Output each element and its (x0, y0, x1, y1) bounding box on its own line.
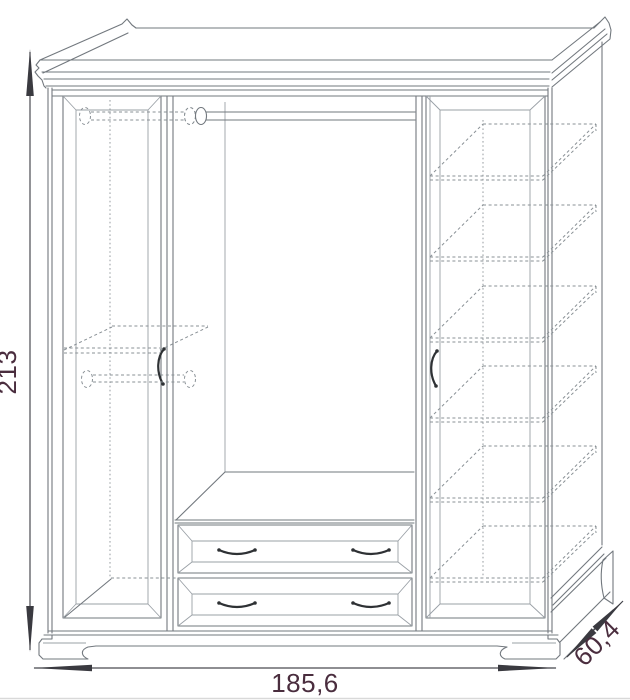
shelf-6 (430, 526, 596, 582)
drawer-2-handle-right (353, 603, 389, 607)
drawer-2-bevel (178, 578, 412, 626)
left-door-bevel (63, 96, 161, 618)
middle-hanging-rod (206, 112, 415, 120)
handle-end (217, 548, 221, 552)
depth-value: 60,4 (567, 613, 625, 671)
drawer-2-handle-left (219, 603, 255, 607)
left-top-hanging-rod (91, 112, 184, 120)
height-dimension: 213 (0, 49, 34, 652)
left-door (63, 96, 166, 618)
handle-end (387, 601, 391, 605)
right-foot (497, 635, 560, 659)
cornice-left-cap (35, 60, 46, 88)
handle-end (253, 548, 257, 552)
drawer-1-bevel (178, 525, 412, 573)
depth-dimension: 60,4 (566, 601, 626, 672)
handle-end (351, 548, 355, 552)
handle-end (434, 384, 438, 388)
handle-end (387, 548, 391, 552)
handle-end (217, 601, 221, 605)
shelf-3 (430, 286, 596, 342)
shelf-2 (430, 205, 596, 261)
right-side-front-edge (548, 88, 552, 633)
right-door-edges (426, 96, 545, 618)
rod-end-cap (82, 371, 93, 388)
left-door-edges (63, 96, 161, 618)
feet (39, 547, 613, 659)
bottom-rail (44, 631, 558, 635)
divider-right (416, 96, 422, 631)
side-plinth-molding (551, 547, 606, 612)
middle-floor-perspective (176, 472, 414, 520)
shelf-1 (430, 124, 596, 180)
arrow-left-icon (33, 665, 92, 671)
left-foot (39, 635, 96, 659)
rod-end-cap (185, 371, 196, 388)
rear-foot (601, 551, 613, 604)
rod-end (196, 108, 207, 125)
divider-left (167, 96, 173, 631)
arrow-up-icon (26, 49, 34, 96)
middle-floor-front-edge (175, 520, 414, 523)
drawer-1-handle-right (353, 550, 389, 554)
left-floor-diagonal (65, 579, 111, 617)
width-value: 185,6 (271, 668, 339, 698)
shelf-4 (430, 366, 596, 422)
right-door (426, 96, 545, 618)
body-frame (44, 42, 602, 646)
wardrobe-schematic: 213 185,6 60,4 (0, 0, 630, 700)
right-door-handle (431, 351, 437, 386)
cornice (35, 17, 611, 88)
arrow-right-icon (498, 665, 557, 671)
right-compartment-shelves (430, 120, 596, 582)
left-shelf-hidden (64, 326, 208, 353)
left-handle-end (161, 382, 165, 386)
left-compartment-interior (64, 100, 208, 617)
left-side-edge (48, 88, 52, 633)
drawer-1 (178, 525, 412, 573)
shelf-5 (430, 446, 596, 502)
handle-end (351, 601, 355, 605)
right-door-bevel (426, 96, 545, 618)
top-rail (52, 90, 548, 96)
cornice-left-miter (40, 19, 136, 73)
middle-section (175, 102, 415, 523)
left-mid-hanging-rod (93, 375, 184, 382)
drawer-2-front (178, 578, 412, 626)
cornice-back-edge (136, 22, 600, 28)
rod-mount-hidden (185, 108, 196, 125)
height-value: 213 (0, 350, 22, 395)
cornice-front-band (40, 60, 552, 86)
drawer-2 (178, 578, 412, 626)
drawer-1-handle-left (219, 550, 255, 554)
wardrobe-drawing: 213 185,6 60,4 (0, 0, 630, 700)
handle-end (435, 349, 439, 353)
drawer-1-front (178, 525, 412, 573)
width-dimension: 185,6 (33, 665, 557, 698)
handle-end (253, 601, 257, 605)
arrow-down-icon (26, 606, 34, 652)
